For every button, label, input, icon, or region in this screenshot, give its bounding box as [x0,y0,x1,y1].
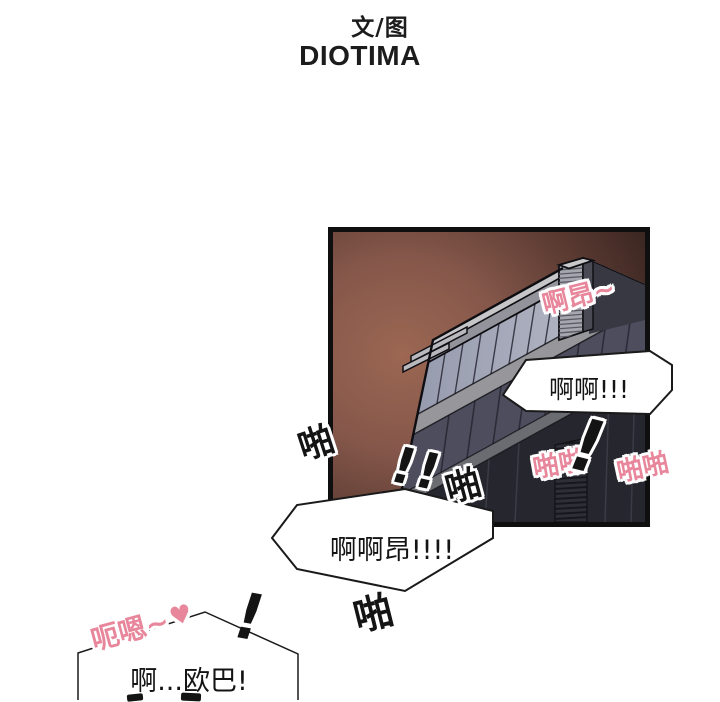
credit-byline: 文/图 [300,8,460,42]
sfx-slap-bottom: 啪 [350,591,397,638]
heart-icon: ♥ [166,600,194,630]
sfx-moan-bottom-text: 呃嗯~ [88,607,172,655]
credit-author-name: DIOTIMA [270,40,450,72]
speech-text-top: 啊啊!!! [505,370,673,406]
clipped-text-fragment [181,692,201,701]
sfx-moan-bottom: 呃嗯~ ♥ [88,601,196,655]
sfx-exclamation-bottom: ! [226,584,272,650]
speech-text-middle: 啊啊昂!!!! [290,528,494,567]
clipped-text-fragment [127,693,144,702]
